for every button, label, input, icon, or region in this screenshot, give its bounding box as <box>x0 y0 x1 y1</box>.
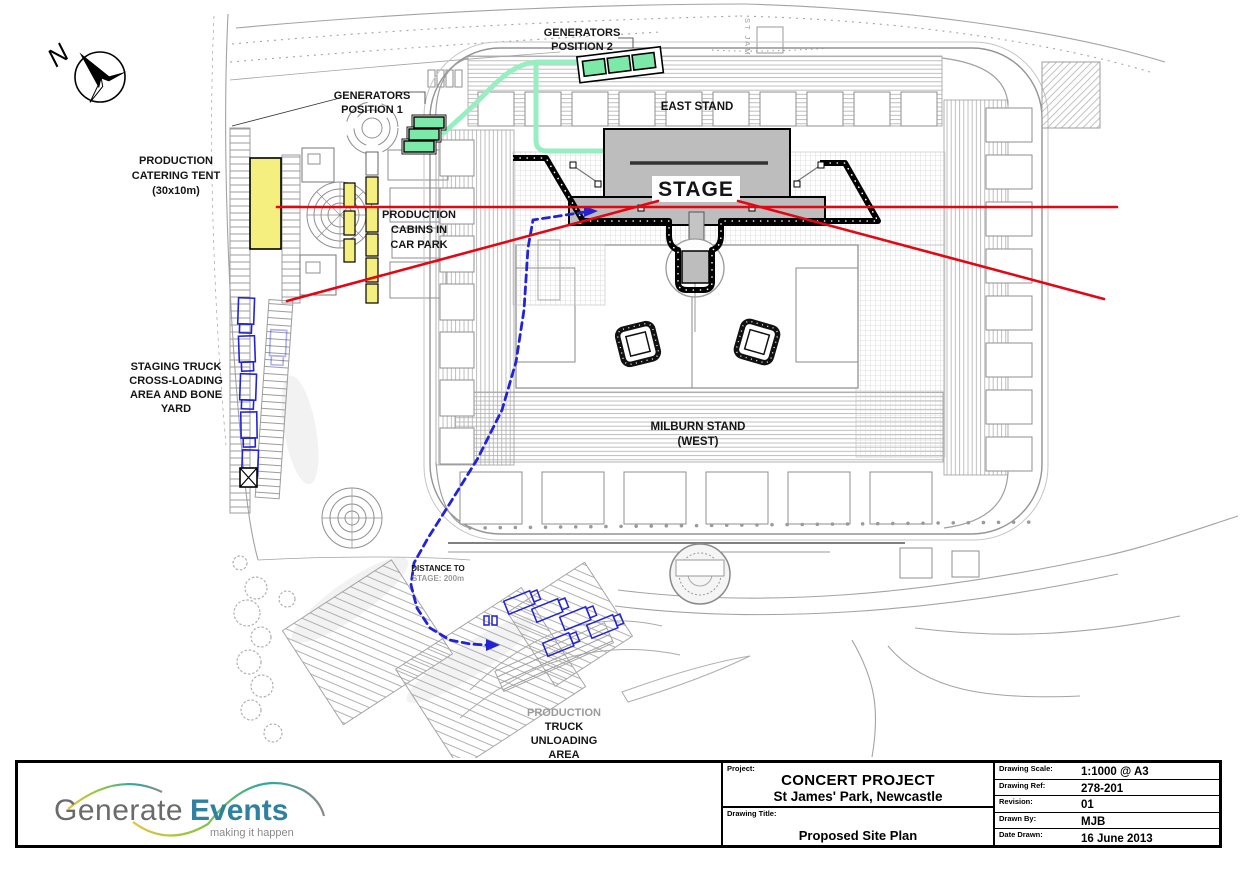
spiral-ramp-mid <box>307 182 373 248</box>
field-value: 01 <box>1081 796 1094 811</box>
label-catering-line3: (30x10m) <box>152 185 200 197</box>
label-distance-line2: STAGE: 200m <box>412 574 464 583</box>
label-cabins-line2: CABINS IN <box>391 224 447 236</box>
logo-cell: Generate Events making it happen <box>18 763 721 845</box>
label-distance-line1: DISTANCE TO <box>411 564 464 573</box>
drawing-title-value: Proposed Site Plan <box>723 828 993 843</box>
field-row-revision: Revision: 01 <box>995 796 1219 813</box>
field-row-drawing-ref: Drawing Ref: 278-201 <box>995 780 1219 797</box>
field-row-date-drawn: Date Drawn: 16 June 2013 <box>995 829 1219 845</box>
field-value: 1:1000 @ A3 <box>1081 763 1149 778</box>
label-milburn-line2: (WEST) <box>678 436 719 448</box>
generate-events-logo: Generate Events making it happen <box>38 764 348 844</box>
production-catering-tent-shape <box>250 158 281 249</box>
label-east-stand: EAST STAND <box>661 101 734 113</box>
label-cabins-line3: CAR PARK <box>390 239 447 251</box>
logo-tagline: making it happen <box>210 827 294 839</box>
project-label: Project: <box>727 764 755 773</box>
project-location: St James' Park, Newcastle <box>723 789 993 804</box>
label-generators-pos1-line1: GENERATORS <box>334 90 411 102</box>
label-unloading-line1: PRODUCTION <box>527 707 601 719</box>
label-unloading-line2: TRUCK <box>545 721 584 733</box>
north-arrow: N <box>41 37 127 102</box>
field-label: Drawing Ref: <box>999 781 1045 790</box>
label-milburn-line1: MILBURN STAND <box>651 421 746 433</box>
project-name: CONCERT PROJECT <box>723 772 993 789</box>
label-unloading-line4: AREA <box>548 749 579 758</box>
drawing-title-cell: Drawing Title: Proposed Site Plan <box>723 808 993 845</box>
label-cabins-line1: PRODUCTION <box>382 209 456 221</box>
bone-yard-marker <box>240 468 257 487</box>
field-value: 278-201 <box>1081 780 1123 795</box>
tree-symbols <box>233 556 295 742</box>
field-value: 16 June 2013 <box>1081 830 1153 845</box>
label-generators-pos2-line2: POSITION 2 <box>551 41 613 53</box>
logo-word2: Events <box>190 794 288 827</box>
field-label: Revision: <box>999 797 1033 806</box>
field-label: Drawn By: <box>999 814 1036 823</box>
field-label: Drawing Scale: <box>999 764 1053 773</box>
field-row-drawing-scale: Drawing Scale: 1:1000 @ A3 <box>995 763 1219 780</box>
spiral-ramp-south <box>322 488 382 548</box>
label-staging-yard-line2: CROSS-LOADING <box>129 375 223 387</box>
label-staging-yard-line4: YARD <box>161 403 191 415</box>
title-block-fields: Drawing Scale: 1:1000 @ A3 Drawing Ref: … <box>993 763 1219 845</box>
label-catering-line2: CATERING TENT <box>132 170 221 182</box>
field-row-drawn-by: Drawn By: MJB <box>995 813 1219 830</box>
label-staging-yard-line1: STAGING TRUCK <box>131 361 222 373</box>
north-label: N <box>41 37 74 72</box>
label-catering-line1: PRODUCTION <box>139 155 213 167</box>
title-block: Generate Events making it happen Project… <box>15 760 1222 848</box>
drawing-title-label: Drawing Title: <box>727 809 776 818</box>
field-label: Date Drawn: <box>999 830 1043 839</box>
label-unloading-line3: UNLOADING <box>531 735 598 747</box>
label-generators-pos2-line1: GENERATORS <box>544 27 621 39</box>
label-staging-yard-line3: AREA AND BONE <box>130 389 222 401</box>
label-generators-pos1-line2: POSITION 1 <box>341 104 403 116</box>
logo-word1: Generate <box>54 794 183 827</box>
site-plan-page: STAGE <box>0 0 1243 874</box>
stage-label: STAGE <box>658 178 734 201</box>
field-value: MJB <box>1081 813 1105 828</box>
street-name-label: ST JAM <box>743 18 752 57</box>
project-cell: Project: CONCERT PROJECT St James' Park,… <box>723 763 993 808</box>
site-plan-drawing: STAGE <box>0 0 1243 758</box>
